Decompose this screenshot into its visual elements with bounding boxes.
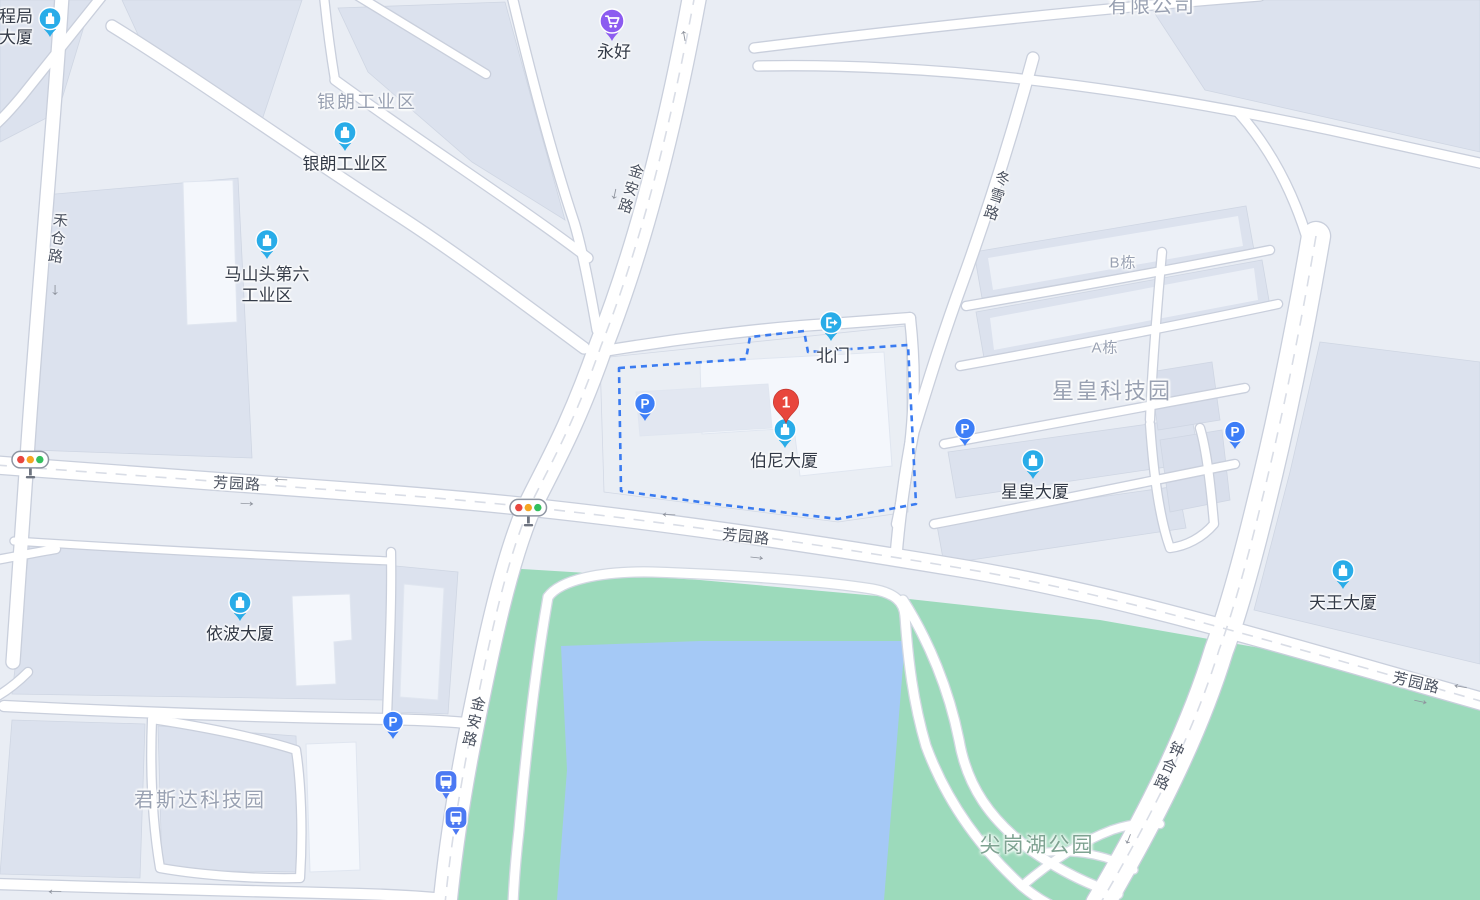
parking-pin-1[interactable]: P: [633, 392, 657, 422]
park-label-jiangang-lake: 尖岗湖公园: [980, 833, 1095, 859]
poi-label-yibo-tower[interactable]: 依波大厦: [206, 623, 274, 644]
poi-label-yinlang[interactable]: 银朗工业区: [303, 153, 388, 174]
north-gate-pin[interactable]: [818, 310, 844, 342]
road-arrow-left-fangyuan-w-icon: ←: [270, 468, 292, 486]
road-label-dongxue: 冬雪路: [978, 167, 1013, 224]
shop-pin-yonghao[interactable]: [598, 8, 626, 42]
parking-icon: P: [640, 396, 649, 411]
block-label-b-dong: B栋: [1109, 255, 1136, 274]
poi-pin-tianwang-tower[interactable]: [1330, 558, 1356, 590]
block-label-a-dong: A栋: [1091, 340, 1118, 359]
poi-pin-xinghuang-tower[interactable]: [1020, 448, 1046, 480]
road-label-zhonghe: 钟合路: [1147, 738, 1186, 795]
road-arrow-right-fangyuan-w-icon: →: [236, 492, 258, 510]
area-label-xinghuang-park: 星皇科技园: [1052, 377, 1172, 405]
area-label-yinlang: 银朗工业区: [317, 91, 417, 114]
road-label-jinan-south: 金安路: [457, 694, 487, 751]
poi-pin-yinlang-industrial[interactable]: [332, 120, 358, 152]
road-arrow-left-south-icon: ←: [44, 881, 65, 898]
map-overlay-layer: P P P P: [0, 0, 1480, 900]
poi-label-chengju-tower[interactable]: 程局 大厦: [0, 6, 33, 49]
road-arrow-down-hecang-icon: ↓: [50, 281, 61, 298]
road-label-hecang: 禾仓路: [43, 211, 69, 267]
poi-pin-chengju-tower[interactable]: [37, 6, 63, 38]
parking-pin-3[interactable]: P: [1223, 420, 1247, 450]
traffic-light-2: [508, 498, 548, 528]
poi-label-mashantou[interactable]: 马山头第六 工业区: [225, 264, 310, 307]
road-arrow-down-jinan-icon: ↓: [608, 184, 622, 203]
bus-stop-pin-2[interactable]: [444, 805, 469, 836]
destination-marker-1[interactable]: 1: [772, 388, 800, 424]
parking-pin-2[interactable]: P: [953, 417, 977, 447]
poi-pin-yibo-tower[interactable]: [227, 590, 253, 622]
road-arrow-right-fangyuan-e-icon: →: [1409, 688, 1433, 709]
parking-icon: P: [960, 421, 969, 436]
poi-pin-mashantou-sixth[interactable]: [254, 228, 280, 260]
road-label-fangyuan-center: 芳园路: [721, 526, 771, 550]
poi-label-xinghuang-tower[interactable]: 星皇大厦: [1001, 481, 1069, 502]
area-label-junsida-park: 君斯达科技园: [134, 789, 266, 814]
poi-label-tianwang-tower[interactable]: 天王大厦: [1309, 592, 1377, 613]
road-arrow-right-fangyuan-c-icon: →: [746, 545, 769, 564]
parking-pin-4[interactable]: P: [381, 710, 405, 740]
area-label-youxiangongsi: 有限公司: [1108, 0, 1196, 20]
poi-label-boni-tower[interactable]: 伯尼大厦: [750, 450, 818, 471]
poi-label-yonghao[interactable]: 永好: [597, 41, 631, 62]
road-label-fangyuan-west: 芳园路: [213, 474, 262, 495]
bus-stop-pin-1[interactable]: [434, 769, 459, 800]
traffic-light-1: [10, 450, 50, 480]
svg-text:1: 1: [782, 395, 791, 412]
road-label-jinan-north: 金安路: [612, 160, 646, 217]
road-arrow-down-zhonghe-icon: ↓: [1121, 828, 1137, 848]
parking-icon: P: [388, 714, 397, 729]
road-label-fangyuan-east: 芳园路: [1390, 669, 1441, 698]
parking-icon: P: [1230, 424, 1239, 439]
map-canvas[interactable]: P P P P: [0, 0, 1480, 900]
road-arrow-left-fangyuan-e-icon: ←: [1449, 674, 1473, 694]
poi-label-north-gate[interactable]: 北门: [816, 345, 850, 366]
road-arrow-up-jinan-icon: ↑: [677, 26, 690, 45]
road-arrow-left-fangyuan-c-icon: ←: [658, 503, 680, 521]
